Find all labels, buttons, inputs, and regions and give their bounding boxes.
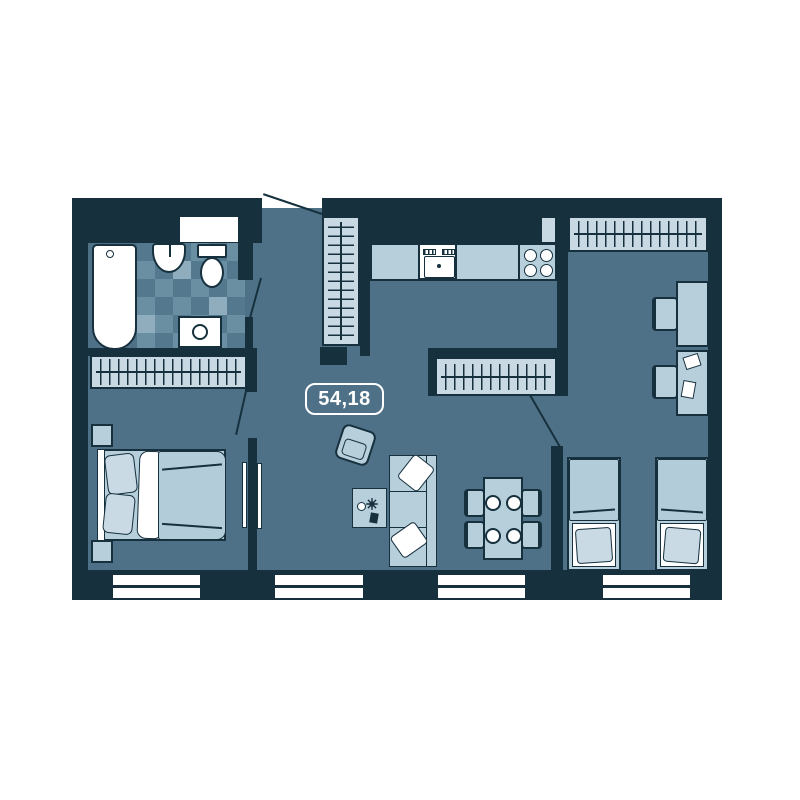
window <box>603 575 690 585</box>
wall-kitchen-kidsroom <box>557 198 568 396</box>
plant-icon <box>365 497 379 511</box>
wall-closet-top <box>428 348 557 357</box>
nightstand <box>91 424 113 447</box>
sink-tap <box>169 244 171 257</box>
tile-highlight <box>209 297 227 315</box>
nightstand <box>91 540 113 563</box>
bed-pillow <box>104 452 139 495</box>
blanket-fold <box>661 509 703 514</box>
plate <box>506 495 522 511</box>
floor-plan: 54,18 <box>0 0 800 800</box>
wall-kitchen-top-block <box>360 198 540 243</box>
window <box>438 588 525 598</box>
tile-highlight <box>137 315 155 333</box>
dining-table <box>483 477 523 560</box>
stove <box>518 243 557 281</box>
dining-chair <box>464 521 485 549</box>
sink-grill <box>423 249 436 255</box>
wall-closet-left <box>428 357 435 396</box>
burner <box>524 249 537 262</box>
sink-drain <box>437 264 441 268</box>
window <box>275 575 363 585</box>
wall-bedroom-right-lower <box>248 438 257 570</box>
tv-bedroom <box>242 462 247 528</box>
kitchen-sink-unit <box>418 243 457 280</box>
blanket-fold <box>162 523 222 529</box>
coffee-table <box>352 488 387 528</box>
tv-living <box>257 463 262 529</box>
plate <box>485 495 501 511</box>
area-label-badge: 54,18 <box>305 383 384 415</box>
area-label: 54,18 <box>318 389 371 409</box>
window <box>113 588 200 598</box>
kitchen-tall-cabinet <box>540 216 557 244</box>
hall-wardrobe <box>322 216 360 346</box>
window <box>275 588 363 598</box>
bed-pillow <box>663 526 702 564</box>
wall-bathroom-right-upper <box>238 216 253 280</box>
bathtub-drain <box>106 250 114 258</box>
sink-grill <box>442 249 455 255</box>
blanket-fold <box>573 509 615 514</box>
bed-blanket <box>569 459 619 521</box>
bed-pillow <box>102 493 136 536</box>
plate <box>485 528 501 544</box>
dining-chair <box>521 521 542 549</box>
window <box>113 575 200 585</box>
blanket-fold <box>162 463 222 470</box>
window <box>438 575 525 585</box>
wall-bathroom-right-lower <box>245 317 253 348</box>
armchair-seat <box>341 438 368 461</box>
desk-chair <box>652 297 678 331</box>
wall-living-kidsroom <box>551 446 563 570</box>
burner <box>540 264 553 277</box>
bed-pillow <box>575 527 613 564</box>
bed-blanket <box>657 459 707 521</box>
bedroom-wardrobe <box>90 355 247 389</box>
wall-right <box>708 198 722 600</box>
burner <box>524 264 537 277</box>
toilet-tank <box>197 244 227 258</box>
desk-chair <box>652 365 678 399</box>
bathroom-cabinet <box>180 217 238 242</box>
wall-left <box>72 198 88 600</box>
dining-chair <box>521 489 542 517</box>
dining-chair <box>464 489 485 517</box>
bathtub <box>92 244 137 350</box>
kidsroom-wardrobe <box>568 216 708 252</box>
wall-hall-stub <box>320 347 347 365</box>
burner <box>540 249 553 262</box>
desk <box>676 281 709 347</box>
bed-blanket <box>158 451 226 540</box>
wall-hall-kitchen <box>360 216 370 356</box>
plate <box>506 528 522 544</box>
toilet-bowl <box>200 257 224 288</box>
book <box>369 512 379 523</box>
washing-machine <box>178 316 222 348</box>
washer-drum <box>192 324 208 340</box>
corridor-closet <box>435 357 557 396</box>
window <box>603 588 690 598</box>
